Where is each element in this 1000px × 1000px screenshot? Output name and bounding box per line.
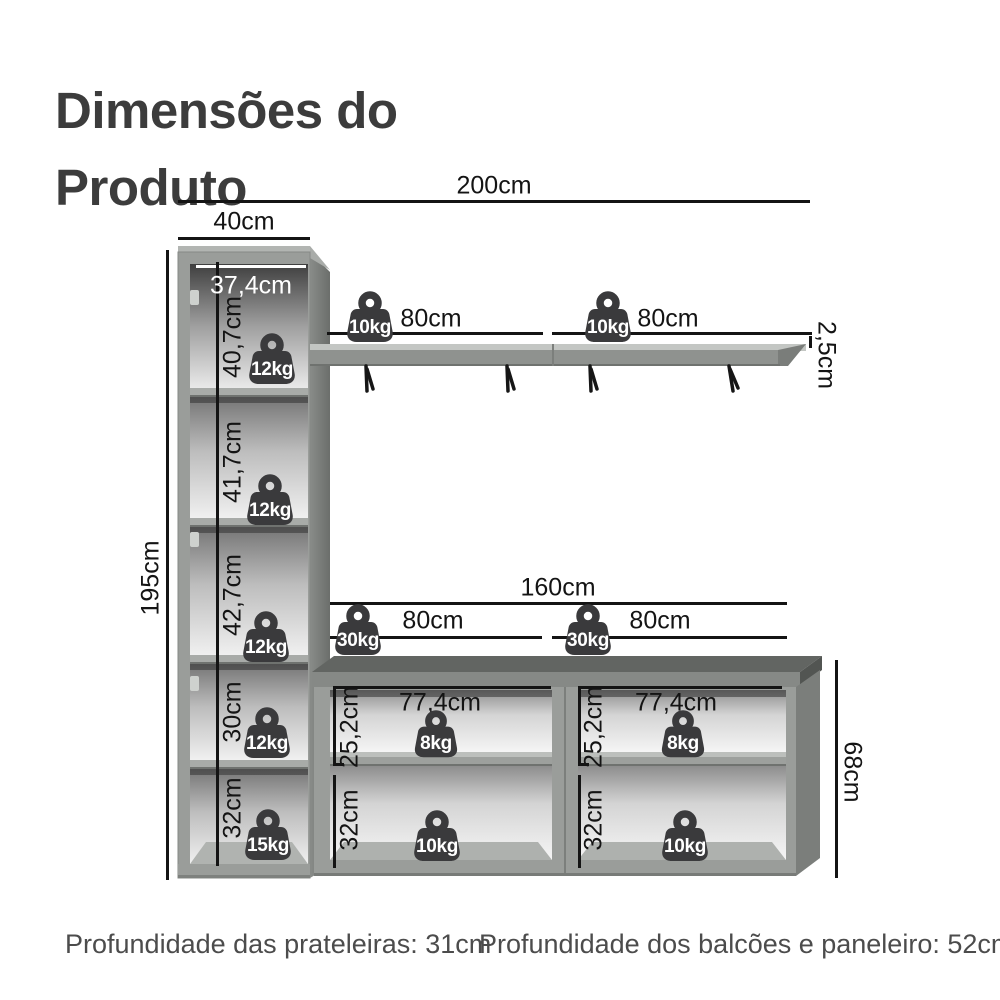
dim-label-tower-height: 195cm xyxy=(137,540,166,615)
page-title: Dimensões do Produto xyxy=(55,72,525,226)
dim-label-counter-height: 68cm xyxy=(838,741,867,802)
dim-line-tower-inner-width xyxy=(196,265,306,268)
dim-label-module-left-upper: 25,2cm xyxy=(336,686,365,768)
dim-label-shelf-right-span: 80cm xyxy=(637,305,698,334)
dim-label-total-width: 200cm xyxy=(456,172,531,201)
dim-label-shelf-left-span: 80cm xyxy=(400,305,461,334)
wall-shelf xyxy=(310,344,806,391)
weight-label: 10kg xyxy=(416,836,458,858)
weight-label: 12kg xyxy=(246,733,288,755)
weight-label: 12kg xyxy=(249,500,291,522)
dim-label-module-right-upper: 25,2cm xyxy=(580,686,609,768)
dim-label-module-right-lower: 32cm xyxy=(580,789,609,850)
weight-badge-counter-right: 30kg xyxy=(561,604,615,658)
weight-badge-counter-left: 30kg xyxy=(331,604,385,658)
dim-label-tower-s1: 40,7cm xyxy=(219,296,248,378)
weight-label: 30kg xyxy=(337,630,379,652)
weight-badge-module-left-upper: 8kg xyxy=(411,709,461,761)
weight-label: 8kg xyxy=(420,733,452,755)
dim-label-tower-width: 40cm xyxy=(213,208,274,237)
weight-badge-tower-s4: 12kg xyxy=(240,707,294,761)
weight-badge-tower-s5: 15kg xyxy=(241,809,295,863)
dim-label-counter-total: 160cm xyxy=(520,574,595,603)
weight-label: 12kg xyxy=(245,637,287,659)
weight-badge-tower-s3: 12kg xyxy=(239,611,293,665)
counter-cabinets xyxy=(312,656,822,876)
weight-label: 12kg xyxy=(251,359,293,381)
weight-label: 10kg xyxy=(587,317,629,339)
weight-label: 10kg xyxy=(349,317,391,339)
weight-badge-shelf-right: 10kg xyxy=(581,291,635,345)
weight-badge-module-left-lower: 10kg xyxy=(410,810,464,864)
dim-line-tower-height xyxy=(166,250,169,880)
dim-line-tower-width xyxy=(178,237,310,240)
shelf-brackets xyxy=(366,366,738,391)
weight-label: 30kg xyxy=(567,630,609,652)
weight-badge-module-right-upper: 8kg xyxy=(658,709,708,761)
dim-label-shelf-thickness: 2,5cm xyxy=(812,321,841,389)
weight-badge-tower-s2: 12kg xyxy=(243,474,297,528)
weight-badge-shelf-left: 10kg xyxy=(343,291,397,345)
footer-shelves-depth: Profundidade das prateleiras: 31cm xyxy=(65,929,491,960)
dim-label-counter-right-span: 80cm xyxy=(629,607,690,636)
weight-label: 8kg xyxy=(667,733,699,755)
weight-badge-tower-s1: 12kg xyxy=(245,333,299,387)
weight-label: 10kg xyxy=(664,836,706,858)
footer-counters-depth: Profundidade dos balcões e paneleiro: 52… xyxy=(479,929,1000,960)
dim-label-counter-left-span: 80cm xyxy=(402,607,463,636)
weight-label: 15kg xyxy=(247,835,289,857)
weight-badge-module-right-lower: 10kg xyxy=(658,810,712,864)
dim-label-module-left-lower: 32cm xyxy=(336,789,365,850)
product-dimensions-diagram: Dimensões do Produto 200cm 40cm 37,4cm 1… xyxy=(0,0,1000,1000)
